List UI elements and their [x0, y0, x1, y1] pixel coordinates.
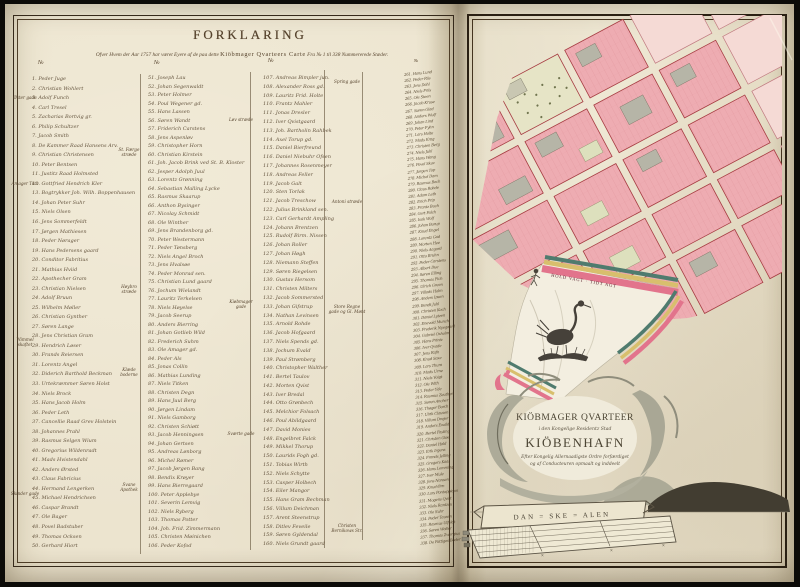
- cartouche-subtitle: i den Kongelige Residentz Stad: [539, 426, 612, 432]
- scale-tick-mark: ×: [662, 544, 665, 549]
- cartouche-note-2: og af Conducteuren opmaalt og inddeelt: [530, 462, 620, 467]
- acanthus-scroll-right: [632, 390, 665, 476]
- scale-tick-mark: ×: [541, 554, 544, 559]
- scale-bar: DAN = SKE = ALEN × × ×: [462, 501, 676, 559]
- scale-tick-mark: ×: [610, 549, 613, 554]
- scanned-map-photo: FORKLARING Ofver Hvem der Aar 1757 har v…: [0, 0, 800, 587]
- cartouche-quarter-title: KIÖBMAGER QVARTEER: [516, 411, 634, 423]
- cartouche-city-title: KIÖBENHAFN: [525, 435, 625, 450]
- cartouche-note-1: Efter Kongelig Allernaadigste Ordre forf…: [520, 455, 629, 460]
- pink-ribbon-accent: [495, 374, 505, 390]
- city-map-art: HOLD VAGT · TIDT AGT: [0, 0, 800, 587]
